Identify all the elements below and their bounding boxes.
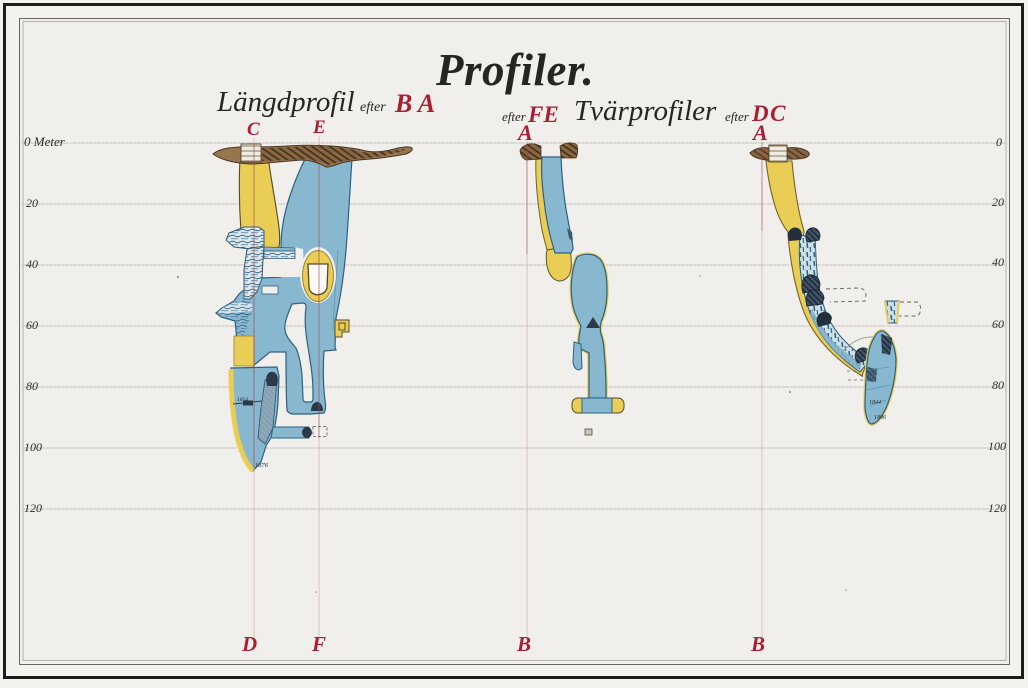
svg-text:60: 60 xyxy=(992,317,1004,331)
svg-text:40: 40 xyxy=(26,257,38,271)
svg-text:A: A xyxy=(751,120,768,145)
svg-text:A: A xyxy=(516,120,533,145)
svg-text:Profiler.: Profiler. xyxy=(435,45,594,95)
svg-text:20: 20 xyxy=(26,196,38,210)
svg-text:1844: 1844 xyxy=(869,399,881,406)
svg-text:1854: 1854 xyxy=(237,396,248,403)
svg-text:40: 40 xyxy=(992,255,1004,269)
svg-text:efter: efter xyxy=(360,100,386,115)
svg-text:120: 120 xyxy=(24,501,42,515)
svg-text:0: 0 xyxy=(996,135,1002,149)
svg-text:efter: efter xyxy=(725,109,750,124)
svg-text:1876: 1876 xyxy=(255,462,269,469)
svg-text:100: 100 xyxy=(24,440,42,454)
svg-text:80: 80 xyxy=(992,378,1004,392)
svg-text:B: B xyxy=(750,632,765,656)
svg-text:F: F xyxy=(311,632,326,656)
svg-text:Längdprofil: Längdprofil xyxy=(216,86,355,118)
svg-text:20: 20 xyxy=(992,195,1004,209)
svg-text:60: 60 xyxy=(26,318,38,332)
svg-text:D: D xyxy=(241,632,257,656)
svg-text:E: E xyxy=(312,117,326,138)
svg-text:120: 120 xyxy=(988,501,1006,515)
svg-text:100: 100 xyxy=(988,439,1006,453)
svg-text:80: 80 xyxy=(26,379,38,393)
svg-text:1896: 1896 xyxy=(874,415,886,421)
svg-text:BA: BA xyxy=(394,89,441,118)
svg-text:0 Meter: 0 Meter xyxy=(24,134,66,149)
svg-text:C: C xyxy=(247,119,260,140)
svg-text:Tvärprofiler: Tvärprofiler xyxy=(574,95,717,127)
svg-text:B: B xyxy=(516,632,531,656)
